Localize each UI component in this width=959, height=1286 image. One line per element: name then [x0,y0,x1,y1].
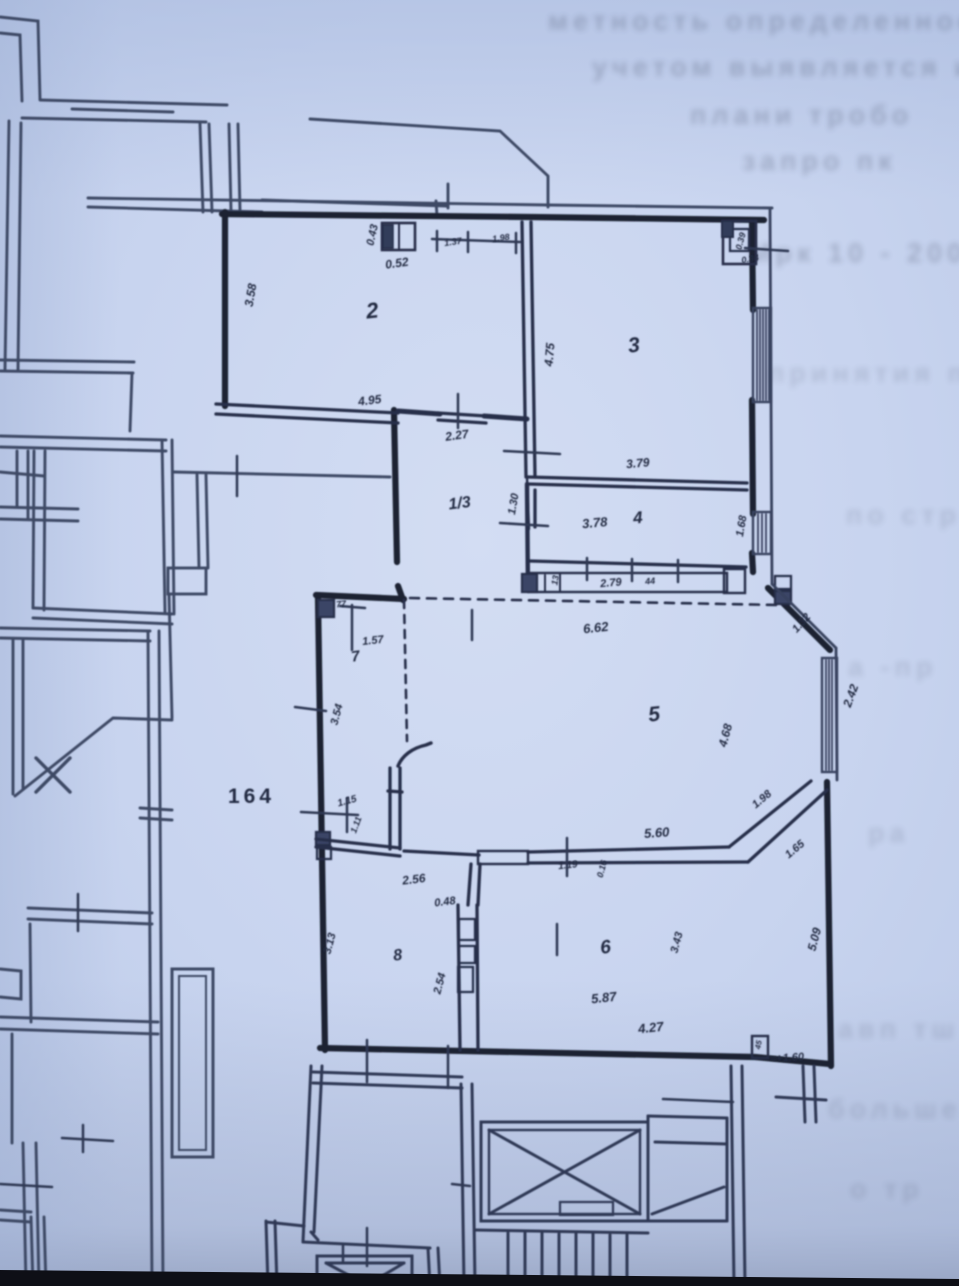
svg-text:1.57: 1.57 [362,634,385,648]
svg-text:5.60: 5.60 [644,824,671,841]
svg-text:1/3: 1/3 [447,494,471,514]
svg-text:по стр: по стр [846,500,959,530]
svg-text:Мрк 10 - 2005 г: Мрк 10 - 2005 г [748,238,959,268]
svg-text:а -пр: а -пр [848,652,937,682]
svg-text:4.27: 4.27 [636,1019,664,1037]
svg-text:1.19: 1.19 [558,859,579,872]
svg-text:164: 164 [228,785,275,808]
svg-text:8: 8 [392,947,403,965]
svg-text:больше тр: больше тр [828,1094,959,1124]
svg-text:13: 13 [549,574,561,586]
svg-text:3.79: 3.79 [626,455,651,471]
svg-text:ра: ра [868,818,910,848]
svg-text:44: 44 [644,576,656,587]
svg-text:5.87: 5.87 [590,989,617,1007]
svg-text:плани тробо: плани тробо [690,100,913,130]
svg-text:принятия пр: принятия пр [768,358,959,388]
svg-text:3.78: 3.78 [581,514,608,531]
svg-text:4.75: 4.75 [541,342,557,368]
svg-text:о тр: о тр [850,1174,924,1204]
svg-text:метность определенность: метность определенность [548,6,959,36]
svg-text:6.62: 6.62 [582,619,609,637]
svg-text:запро пк: запро пк [742,146,897,176]
svg-text:2.79: 2.79 [599,576,623,590]
svg-text:авп тш: авп тш [838,1014,959,1044]
svg-text:≈+1.60: ≈+1.60 [770,1051,806,1065]
svg-text:учетом выявляется и: учетом выявляется и [592,52,959,82]
svg-text:2.56: 2.56 [400,871,426,888]
svg-text:4.95: 4.95 [356,392,382,409]
